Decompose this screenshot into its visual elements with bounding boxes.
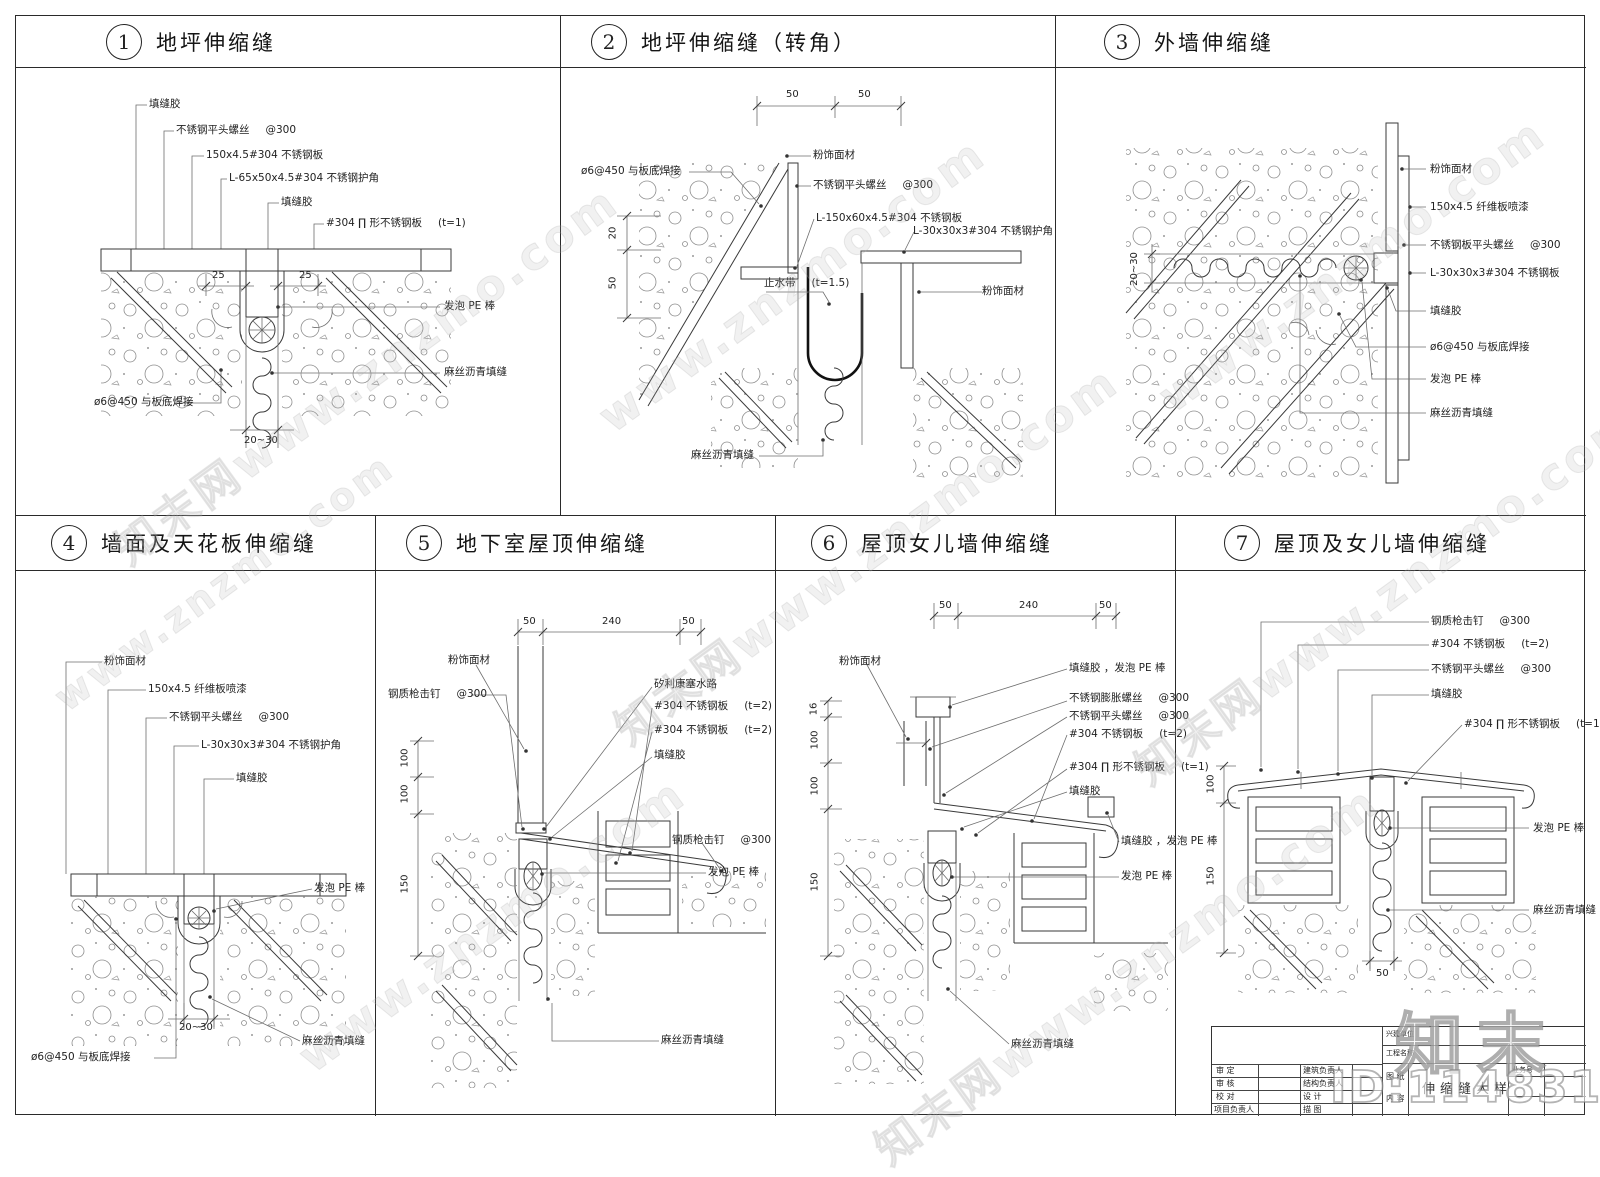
annotation-label: 填缝胶 [1430, 306, 1462, 317]
panel-2-header: 2 地坪伸缩缝（转角） [561, 16, 1055, 68]
dimension-text: 50 [608, 277, 618, 290]
annotation-label: 粉饰面材 [448, 655, 490, 666]
dimension-text: 150 [1207, 866, 1217, 885]
annotation-label: #304 不锈钢板(t=2) [654, 701, 772, 712]
drawing-label-2: 内 容 [1386, 1095, 1405, 1103]
panel-title: 屋顶及女儿墙伸缩缝 [1274, 528, 1490, 558]
dimension-text: 20~30 [179, 1023, 213, 1033]
dimension-text: 50 [858, 90, 871, 100]
annotation-label: L-65x50x4.5#304 不锈钢护角 [229, 173, 379, 184]
annotation-label: 150x4.5#304 不锈钢板 [206, 150, 323, 161]
annotation-label: 麻丝沥青填缝 [302, 1036, 365, 1047]
dimension-text: 100 [401, 784, 411, 803]
dimension-text: 50 [786, 90, 799, 100]
annotation-label: 发泡 PE 棒 [444, 301, 495, 312]
dimension-text: 50 [682, 617, 695, 627]
dimension-text: 20~30 [1130, 252, 1140, 286]
dimension-text: 240 [1019, 601, 1038, 611]
annotation-label: 填缝胶 [1431, 689, 1463, 700]
annotation-label: 粉饰面材 [104, 656, 146, 667]
detail-number-badge: 5 [406, 525, 442, 561]
panel-1-header: 1 地坪伸缩缝 [16, 16, 560, 68]
approver-label: 审 定 [1216, 1067, 1235, 1075]
dimension-text: 16 [809, 703, 819, 716]
annotation-label: ø6@450 与板底焊接 [31, 1052, 130, 1063]
annotation-label: 发泡 PE 棒 [708, 867, 759, 878]
owner-label: 兴建单位 [1386, 1031, 1414, 1038]
annotation-label: L-30x30x3#304 不锈钢板 [1430, 268, 1559, 279]
dimension-text: 25 [299, 271, 312, 281]
annotation-label: L-30x30x3#304 不锈钢护角 [201, 740, 341, 751]
detail-number-badge: 6 [811, 525, 847, 561]
annotation-label: 不锈钢平头螺丝@300 [1431, 664, 1551, 675]
annotation-label: 不锈钢平头螺丝@300 [1069, 711, 1189, 722]
panel-title: 地坪伸缩缝 [156, 27, 276, 57]
panel-title: 外墙伸缩缝 [1154, 27, 1274, 57]
arch-lead-label: 建筑负责人 [1303, 1067, 1343, 1075]
panel-6-header: 6 屋顶女儿墙伸缩缝 [776, 516, 1175, 571]
panel-title: 地下室屋顶伸缩缝 [456, 528, 648, 558]
dimension-text: 100 [1207, 774, 1217, 793]
project-name-label: 工程名称 [1386, 1050, 1414, 1057]
annotation-label: ø6@450 与板底焊接 [581, 166, 680, 177]
detail-number-badge: 2 [591, 24, 627, 60]
annotation-label: 150x4.5 纤维板喷漆 [1430, 202, 1529, 213]
annotation-label: 填缝胶 ，发泡 PE 棒 [1069, 663, 1165, 674]
panel-3-header: 3 外墙伸缩缝 [1056, 16, 1586, 68]
annotation-label: #304 ∏ 形不锈钢板(t=1) [1464, 719, 1600, 730]
dimension-text: 25 [212, 271, 225, 281]
annotation-label: 不锈钢平头螺丝@300 [169, 712, 289, 723]
annotation-label: 发泡 PE 棒 [1121, 871, 1172, 882]
annotation-label: 钢质枪击钉@300 [388, 689, 487, 700]
drawing-content-title: 伸缩缝大样 [1422, 1083, 1512, 1096]
panel-title: 屋顶女儿墙伸缩缝 [861, 528, 1053, 558]
panel-5-header: 5 地下室屋顶伸缩缝 [376, 516, 775, 571]
annotation-label: 发泡 PE 棒 [1533, 823, 1584, 834]
dimension-text: 50 [939, 601, 952, 611]
dimension-text: 20 [608, 227, 618, 240]
detail-number-badge: 4 [51, 525, 87, 561]
annotation-label: 矽利康塞水路 [654, 679, 717, 690]
drawing-label-1: 图 纸 [1386, 1073, 1405, 1081]
annotation-label: #304 不锈钢板(t=2) [654, 725, 772, 736]
dimension-text: 150 [401, 874, 411, 893]
panel-7-header: 7 屋顶及女儿墙伸缩缝 [1176, 516, 1586, 571]
annotation-label: L-30x30x3#304 不锈钢护角 [913, 226, 1053, 237]
annotation-label: 填缝胶 [236, 773, 268, 784]
dimension-text: 240 [602, 617, 621, 627]
checker-label: 审 核 [1216, 1080, 1235, 1088]
dimension-text: 50 [1376, 969, 1389, 979]
detail-drawing [776, 571, 1176, 1116]
dimension-text: 100 [811, 730, 821, 749]
annotation-label: 填缝胶 [281, 197, 313, 208]
annotation-label: 麻丝沥青填缝 [1533, 905, 1596, 916]
dimension-text: 100 [401, 748, 411, 767]
dimension-text: 20~30 [244, 436, 278, 446]
proofer-label: 校 对 [1216, 1093, 1235, 1101]
detail-number-badge: 7 [1224, 525, 1260, 561]
annotation-label: #304 不锈钢板(t=2) [1069, 729, 1187, 740]
detail-panel-4: 4 墙面及天花板伸缩缝 [16, 516, 376, 1116]
annotation-label: 麻丝沥青填缝 [444, 367, 507, 378]
annotation-label: 粉饰面材 [1430, 164, 1472, 175]
tracer-label: 描 图 [1303, 1106, 1322, 1114]
annotation-label: #304 不锈钢板(t=2) [1431, 639, 1549, 650]
annotation-label: #304 ∏ 形不锈钢板(t=1) [326, 218, 466, 229]
annotation-label: 不锈钢平头螺丝@300 [176, 125, 296, 136]
annotation-label: 粉饰面材 [813, 150, 855, 161]
annotation-label: 填缝胶 [149, 99, 181, 110]
project-lead-label: 项目负责人 [1214, 1106, 1254, 1114]
panel-title: 墙面及天花板伸缩缝 [101, 528, 317, 558]
annotation-label: 麻丝沥青填缝 [1430, 408, 1493, 419]
drawing-sheet: 1 地坪伸缩缝 [15, 15, 1585, 1115]
annotation-label: 发泡 PE 棒 [314, 883, 365, 894]
annotation-label: 填缝胶 [1069, 786, 1101, 797]
annotation-label: 150x4.5 纤维板喷漆 [148, 684, 247, 695]
job-number-label: 业务号 [1512, 1067, 1533, 1074]
struct-lead-label: 结构负责人 [1303, 1080, 1343, 1088]
annotation-label: 不锈钢膨胀螺丝@300 [1069, 693, 1189, 704]
annotation-label: 粉饰面材 [839, 656, 881, 667]
designer-label: 设 计 [1303, 1093, 1322, 1101]
detail-number-badge: 3 [1104, 24, 1140, 60]
annotation-label: 填缝胶 [654, 750, 686, 761]
dimension-text: 150 [811, 872, 821, 891]
annotation-label: 钢质枪击钉@300 [1431, 616, 1530, 627]
detail-panel-3: 3 外墙伸缩缝 [1056, 16, 1586, 516]
panel-title: 地坪伸缩缝（转角） [641, 27, 857, 57]
annotation-label: 不锈钢板平头螺丝@300 [1430, 240, 1561, 251]
annotation-label: L-150x60x4.5#304 不锈钢板 [816, 213, 962, 224]
detail-panel-2: 2 地坪伸缩缝（转角） [561, 16, 1056, 516]
detail-panel-1: 1 地坪伸缩缝 [16, 16, 561, 516]
dimension-text: 100 [811, 776, 821, 795]
dimension-text: 50 [1099, 601, 1112, 611]
annotation-label: 钢质枪击钉@300 [672, 835, 771, 846]
annotation-label: ø6@450 与板底焊接 [94, 397, 193, 408]
annotation-label: 止水带(t=1.5) [764, 278, 849, 289]
detail-drawing [1056, 68, 1586, 516]
annotation-label: 麻丝沥青填缝 [661, 1035, 724, 1046]
detail-number-badge: 1 [106, 24, 142, 60]
annotation-label: ø6@450 与板底焊接 [1430, 342, 1529, 353]
annotation-label: 粉饰面材 [982, 286, 1024, 297]
panel-4-header: 4 墙面及天花板伸缩缝 [16, 516, 375, 571]
title-block: 审 定 审 核 校 对 项目负责人 建筑负责人 结构负责人 设 计 描 图 兴建… [1211, 1026, 1585, 1115]
annotation-label: 不锈钢平头螺丝@300 [813, 180, 933, 191]
detail-panel-5: 5 地下室屋顶伸缩缝 [376, 516, 776, 1116]
detail-panel-6: 6 屋顶女儿墙伸缩缝 [776, 516, 1176, 1116]
dimension-text: 50 [523, 617, 536, 627]
annotation-label: 麻丝沥青填缝 [691, 450, 754, 461]
annotation-label: 发泡 PE 棒 [1430, 374, 1481, 385]
annotation-label: 麻丝沥青填缝 [1011, 1039, 1074, 1050]
